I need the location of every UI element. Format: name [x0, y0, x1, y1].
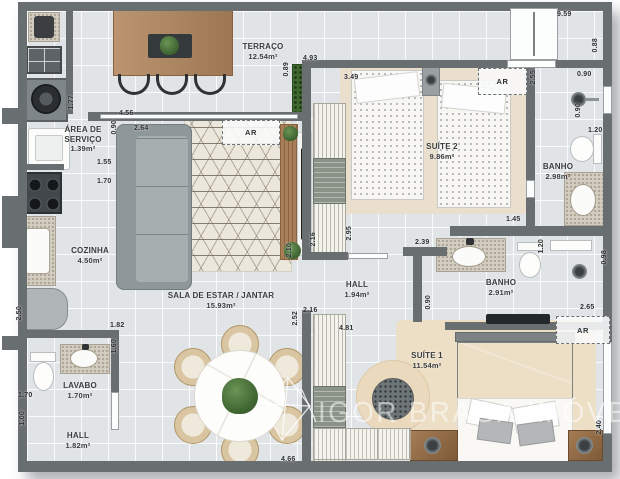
wall — [18, 461, 612, 472]
room-name: BANHO — [471, 278, 531, 288]
wall — [450, 226, 612, 236]
room-label: BANHO2.91m² — [471, 278, 531, 297]
banho1-shower-head-icon — [572, 264, 587, 279]
suite2-closet-drawers — [313, 158, 346, 204]
wall — [18, 330, 119, 338]
wall — [302, 60, 311, 260]
room-label: SUÍTE 29.86m² — [407, 142, 477, 161]
dimension-label: 2.64 — [134, 124, 148, 133]
ar-unit-label: AR — [222, 120, 280, 145]
room-name: SUÍTE 2 — [407, 142, 477, 152]
suite1-duvet — [457, 342, 573, 400]
window-opening — [507, 60, 556, 68]
suite1-lamp-icon — [424, 437, 441, 454]
dimension-label: 1.55 — [97, 158, 111, 167]
dimension-label: 1.00 — [18, 411, 27, 425]
room-area: 1.70m² — [50, 391, 110, 401]
room-name: BANHO — [528, 162, 588, 172]
banho1-bench — [550, 240, 592, 251]
ar-unit-label: AR — [556, 316, 610, 344]
floor-plan: IGOR BRAGA IMÓVEIS TERRAÇO12.54m²ÁREA DE… — [0, 0, 620, 479]
room-name: SUÍTE 1 — [392, 351, 462, 361]
dimension-label: 9.59 — [557, 10, 571, 19]
dimension-label: 1.45 — [506, 215, 520, 224]
room-name: COZINHA — [55, 246, 125, 256]
dimension-label: 2.16 — [303, 306, 317, 315]
dimension-label: 3.49 — [344, 73, 358, 82]
wall — [526, 198, 535, 228]
banho1-toilet — [519, 252, 541, 278]
room-area: 4.50m² — [55, 256, 125, 266]
room-label: SUÍTE 111.54m² — [392, 351, 462, 370]
lavabo-toilet-tank — [30, 352, 56, 362]
dimension-label: 2.65 — [580, 303, 594, 312]
room-area: 12.54m² — [218, 52, 308, 62]
room-label: COZINHA4.50m² — [55, 246, 125, 265]
kitchen-sink — [24, 228, 50, 274]
suite2-lamp-icon — [425, 74, 437, 86]
laundry-sink — [34, 16, 54, 38]
watermark-text: IGOR BRAGA IMÓVEIS — [318, 397, 620, 429]
room-label: TERRAÇO12.54m² — [218, 42, 308, 61]
dimension-label: 0.90 — [424, 295, 433, 309]
room-area: 1.39m² — [55, 144, 111, 154]
dimension-label: 0.98 — [600, 250, 609, 264]
dimension-label: 4.66 — [281, 455, 295, 464]
table-plant-icon — [160, 36, 179, 55]
dimension-label: 0.90 — [574, 103, 583, 117]
room-area: 11.54m² — [392, 361, 462, 371]
room-name: ÁREA DE SERVIÇO — [55, 125, 111, 144]
washer-drum-icon — [31, 84, 61, 114]
wall — [18, 2, 27, 472]
suite1-closet-modules — [313, 428, 411, 460]
dimension-label: 0.89 — [282, 62, 291, 76]
dimension-label: 0.90 — [577, 70, 591, 79]
dimension-label: 4.56 — [119, 109, 133, 118]
dimension-label: 4.93 — [303, 54, 317, 63]
room-label: HALL1.82m² — [48, 431, 108, 450]
wall — [403, 247, 447, 256]
banho2-toilet-tank — [593, 134, 602, 164]
wall — [556, 60, 603, 68]
dimension-label: 4.81 — [339, 324, 353, 333]
room-area: 9.86m² — [407, 152, 477, 162]
room-label: BANHO2.98m² — [528, 162, 588, 181]
window-opening — [111, 392, 119, 430]
room-name: LAVABO — [50, 381, 110, 391]
stove — [22, 172, 62, 214]
igor-braga-logo-icon — [258, 376, 316, 442]
wall — [413, 256, 422, 322]
room-name: HALL — [327, 280, 387, 290]
room-area: 1.82m² — [48, 441, 108, 451]
dimension-label: 1.70 — [97, 177, 111, 186]
banho2-toilet — [570, 136, 594, 162]
service-cabinet — [26, 46, 62, 74]
window-opening — [603, 86, 612, 114]
faucet-icon — [466, 238, 474, 245]
room-name: SALA DE ESTAR / JANTAR — [136, 291, 306, 301]
room-name: TERRAÇO — [218, 42, 308, 52]
suite1-lamp-icon — [576, 437, 593, 454]
wall — [2, 336, 19, 350]
dimension-label: 1.20 — [537, 239, 546, 253]
room-name: HALL — [48, 431, 108, 441]
dimension-label: 1.77 — [67, 95, 76, 109]
room-area: 1.94m² — [327, 290, 387, 300]
glass-partition-line — [533, 12, 535, 56]
dimension-label: 2.50 — [15, 306, 24, 320]
dimension-label: 0.88 — [591, 38, 600, 52]
room-label: ÁREA DE SERVIÇO1.39m² — [55, 125, 111, 154]
dimension-label: 1.82 — [110, 321, 124, 330]
dimension-label: 2.39 — [415, 238, 429, 247]
wall — [18, 164, 64, 170]
sofa-cushions — [136, 136, 188, 282]
wall — [2, 108, 19, 124]
wall — [2, 196, 19, 248]
room-label: LAVABO1.70m² — [50, 381, 110, 400]
window-opening — [526, 180, 535, 198]
tv-panel — [280, 124, 298, 260]
suite1-tv — [486, 314, 550, 324]
centerpiece-plant-icon — [222, 378, 258, 414]
room-area: 2.91m² — [471, 288, 531, 298]
banho1-sink — [452, 246, 486, 267]
room-label: SALA DE ESTAR / JANTAR15.93m² — [136, 291, 306, 310]
lavabo-sink — [70, 349, 98, 368]
dimension-label: 2.52 — [291, 311, 300, 325]
wall — [302, 252, 348, 260]
dimension-label: 2.16 — [309, 232, 318, 246]
ar-unit-label: AR — [478, 68, 527, 95]
dimension-label: 1.60 — [110, 339, 119, 353]
dimension-label: 0.90 — [110, 120, 119, 134]
window-opening — [348, 253, 388, 259]
banho2-sink — [570, 184, 596, 216]
plant-icon — [283, 126, 298, 141]
dimension-label: 1.70 — [18, 391, 32, 400]
dimension-label: 1.20 — [588, 126, 602, 135]
wall — [302, 60, 507, 68]
dimension-label: 2.95 — [345, 226, 354, 240]
room-area: 2.98m² — [528, 172, 588, 182]
room-label: HALL1.94m² — [327, 280, 387, 299]
faucet-icon — [82, 344, 89, 350]
room-area: 15.93m² — [136, 301, 306, 311]
banho2-shower-arm — [585, 98, 599, 101]
dimension-label: 2.10 — [285, 243, 294, 257]
dimension-label: 2.55 — [529, 70, 538, 84]
